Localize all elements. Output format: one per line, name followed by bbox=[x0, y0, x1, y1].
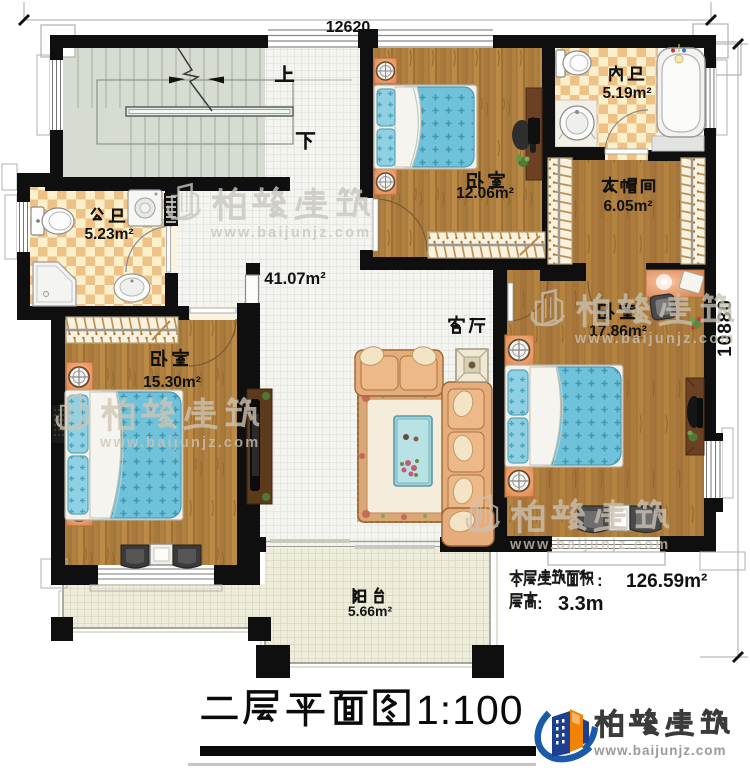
svg-text:6.05m²: 6.05m² bbox=[603, 198, 652, 215]
svg-text:3.3m: 3.3m bbox=[558, 593, 604, 615]
svg-text:126.59m²: 126.59m² bbox=[626, 571, 707, 592]
svg-text:5.19m²: 5.19m² bbox=[602, 85, 651, 102]
svg-text:15.30m²: 15.30m² bbox=[143, 374, 201, 391]
svg-text:5.23m²: 5.23m² bbox=[84, 226, 133, 243]
svg-text::: : bbox=[597, 571, 603, 590]
svg-text:41.07m²: 41.07m² bbox=[264, 270, 326, 288]
svg-text::: : bbox=[537, 594, 543, 613]
svg-text:12620: 12620 bbox=[326, 19, 371, 36]
svg-text:1:100: 1:100 bbox=[416, 687, 524, 733]
svg-text:www.baijunjz.com: www.baijunjz.com bbox=[593, 743, 727, 758]
svg-text:12.06m²: 12.06m² bbox=[456, 185, 514, 202]
svg-text:5.66m²: 5.66m² bbox=[348, 603, 393, 619]
